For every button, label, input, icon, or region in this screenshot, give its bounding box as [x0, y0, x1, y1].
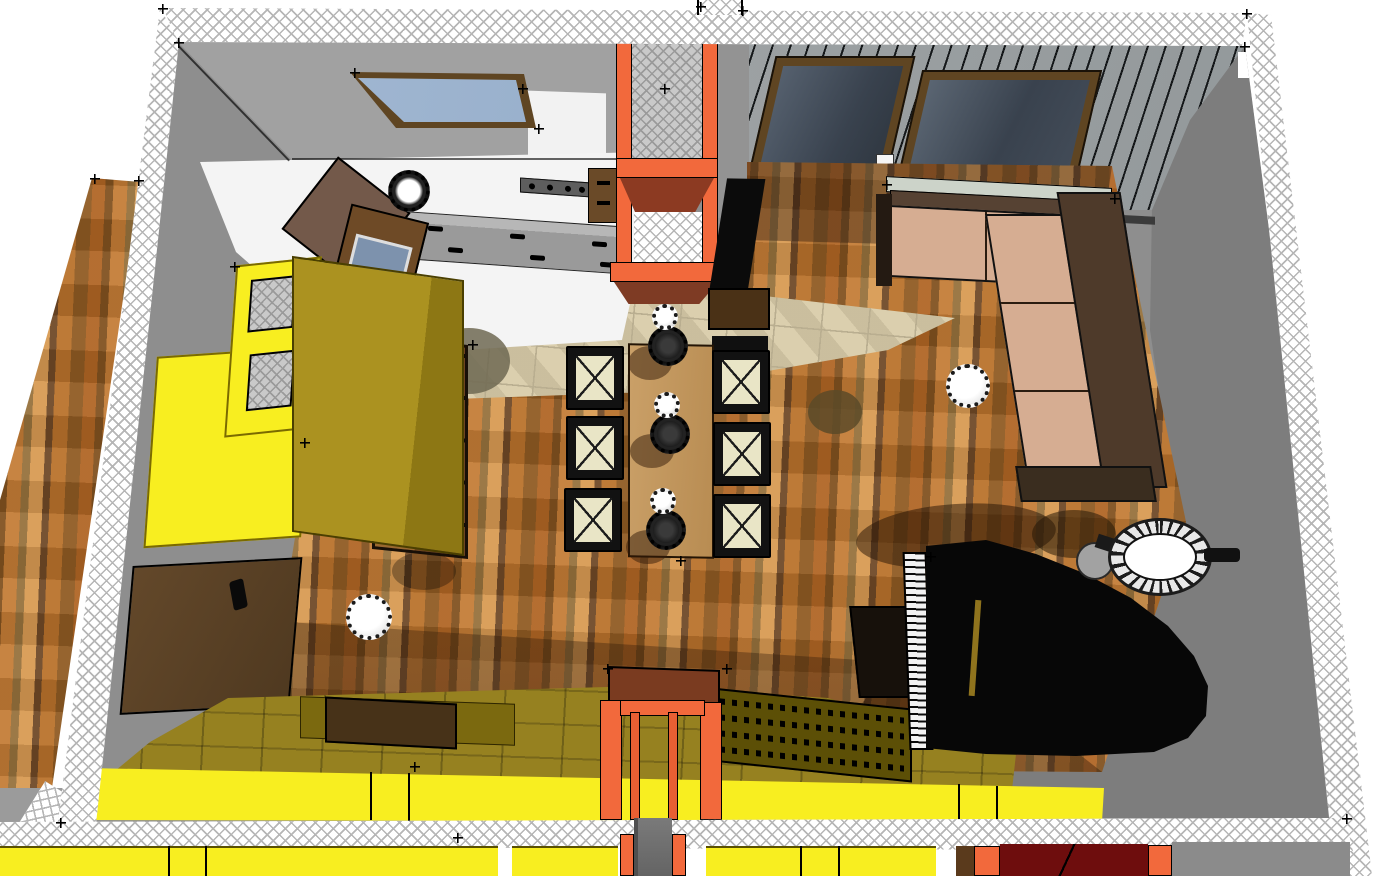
doorway-jamb-left — [600, 700, 622, 820]
chimney-shaft-upper — [628, 42, 710, 164]
guide-mark — [926, 552, 936, 562]
guide-mark — [174, 38, 184, 48]
pendant-lamp-2[interactable] — [632, 392, 702, 472]
knob — [565, 186, 571, 192]
lamp-globe — [650, 488, 676, 514]
dining-chair-1[interactable] — [566, 346, 624, 410]
guide-mark — [158, 4, 168, 14]
knob — [529, 183, 535, 189]
guide-mark — [134, 176, 144, 186]
sofa-left-arm — [876, 194, 892, 286]
model-viewport[interactable] — [0, 0, 1400, 876]
desk-brown-box[interactable] — [325, 697, 457, 750]
adjacent-room-brown — [956, 846, 974, 876]
knob — [579, 187, 585, 193]
guide-mark — [90, 174, 100, 184]
band-tick — [958, 784, 960, 822]
adjacent-room-gap — [498, 849, 512, 876]
lounge-cushion — [1123, 533, 1197, 581]
guide-mark — [722, 664, 732, 674]
lamp-shade — [648, 326, 688, 366]
wood-door[interactable] — [120, 557, 303, 715]
dining-chair-5[interactable] — [713, 422, 771, 486]
adjacent-room-gray-floor — [1172, 842, 1350, 876]
adjacent-room-yellow-3 — [706, 846, 936, 876]
strip-tick — [838, 846, 840, 876]
sofa-bottom-arm — [1015, 466, 1157, 502]
guide-mark — [518, 84, 528, 94]
lamp-globe — [654, 392, 680, 418]
pendant-lamp-1[interactable] — [630, 304, 700, 384]
guide-mark — [1342, 814, 1352, 824]
guide-mark — [1242, 9, 1252, 19]
guide-mark — [300, 438, 310, 448]
drawer-handle — [592, 241, 607, 247]
wall-edge-line-1 — [292, 158, 648, 160]
olive-wardrobe[interactable] — [292, 256, 464, 556]
adjacent-room-orange-1 — [974, 846, 1000, 876]
door-handle — [229, 578, 248, 611]
chimney-shaft-lower — [634, 212, 702, 264]
band-tick — [408, 773, 410, 821]
corridor-jamb-right — [672, 834, 686, 876]
adjacent-room-maroon-door — [1000, 844, 1148, 876]
doorway-inner-left — [630, 712, 640, 820]
guide-mark — [350, 68, 360, 78]
chair-seat — [576, 426, 614, 470]
drawer-handle — [530, 255, 545, 261]
kitchen-tall-cabinet[interactable] — [588, 168, 618, 223]
divider-opening-1 — [247, 275, 296, 332]
guide-mark — [1240, 42, 1250, 52]
drawer-handle — [428, 226, 443, 232]
adjacent-room-orange-2 — [1148, 845, 1172, 876]
band-tick — [370, 772, 372, 820]
chair-seat — [576, 356, 614, 400]
adjacent-room-yellow-1 — [0, 846, 498, 876]
chimney-base-band — [610, 262, 722, 282]
lamp-shade — [646, 510, 686, 550]
chair-seat — [723, 432, 761, 476]
guide-mark — [468, 340, 478, 350]
guide-mark — [1110, 194, 1120, 204]
band-tick — [996, 786, 998, 822]
tv-console[interactable] — [708, 288, 770, 330]
corridor-jamb-left — [620, 834, 634, 876]
guide-mark — [534, 124, 544, 134]
doorway-inner-right — [668, 712, 678, 820]
guide-mark — [453, 833, 463, 843]
knob — [547, 184, 553, 190]
strip-tick — [800, 846, 802, 876]
guide-mark — [410, 762, 420, 772]
pendant-lamp-3[interactable] — [628, 488, 698, 568]
chair-seat — [574, 498, 612, 542]
dining-chair-6[interactable] — [713, 494, 771, 558]
wood-shadow-blob-1 — [808, 390, 862, 434]
dining-chair-3[interactable] — [564, 488, 622, 552]
cabinet-handle — [597, 201, 610, 205]
strip-tick — [205, 846, 207, 876]
guide-mark — [882, 180, 892, 190]
guide-mark — [676, 556, 686, 566]
drawer-handle — [510, 233, 525, 239]
chair-seat — [723, 504, 761, 548]
lounge-arm-right — [1204, 548, 1240, 562]
dining-chair-2[interactable] — [566, 416, 624, 480]
south-corridor — [634, 818, 672, 876]
drawer-handle — [448, 247, 463, 253]
lamp-shade — [650, 414, 690, 454]
guide-mark — [603, 664, 613, 674]
pendant-lamp-living[interactable] — [946, 364, 990, 408]
guide-mark — [56, 818, 66, 828]
room-interior — [0, 0, 1400, 876]
ornate-pan[interactable] — [388, 170, 430, 212]
pendant-lamp-door[interactable] — [346, 594, 392, 640]
guide-mark — [660, 84, 670, 94]
wood-shadow-blob-4 — [392, 552, 456, 590]
guide-mark — [230, 262, 240, 272]
guide-mark — [738, 6, 748, 16]
strip-tick — [168, 846, 170, 876]
dining-chair-4[interactable] — [712, 350, 770, 414]
cabinet-handle — [597, 181, 610, 185]
divider-opening-2 — [246, 350, 296, 412]
doorway-jamb-right — [700, 702, 722, 820]
lamp-globe — [652, 304, 678, 330]
chair-seat — [722, 360, 760, 404]
chimney-cross-band — [616, 158, 718, 178]
guide-mark — [696, 2, 706, 12]
adjacent-room-yellow-2 — [512, 846, 618, 876]
lounge-chair[interactable] — [1108, 518, 1212, 596]
